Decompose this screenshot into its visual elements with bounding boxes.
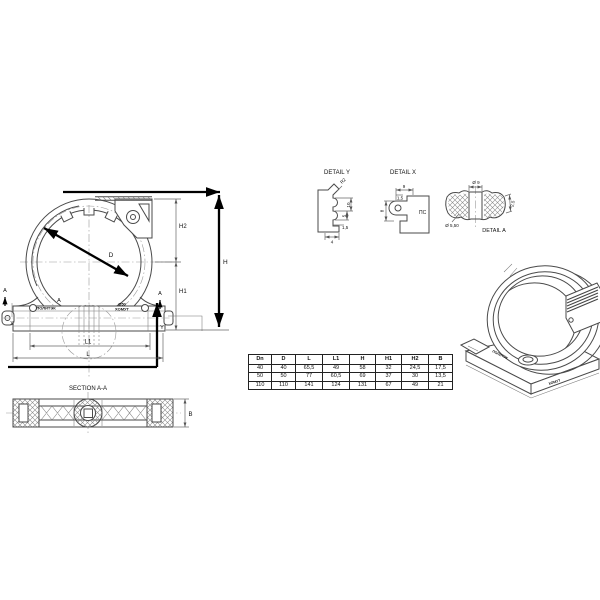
detail-y-title: DETAIL Y: [324, 170, 350, 176]
cell: 13,5: [429, 373, 453, 382]
col-l1: L1: [323, 355, 350, 365]
dim-h2-label: H2: [179, 224, 187, 230]
cell: 110: [249, 381, 272, 390]
dim-d-label: D: [109, 252, 114, 259]
detail-a-view: Ø 9 Ø 5,50 2,5 DETAIL A: [445, 180, 515, 234]
col-h1: H1: [376, 355, 402, 365]
cell: 37: [376, 373, 402, 382]
detail-x-dim-8: 8: [380, 209, 385, 212]
section-aa-title: SECTION A-A: [69, 386, 107, 392]
cell: 50: [249, 373, 272, 382]
isometric-view: ПОЛИТЭК ХОМУТ: [461, 254, 600, 398]
col-d: D: [272, 355, 296, 365]
section-aa-view: SECTION A-A B: [6, 386, 193, 433]
table-row: 110 110 141 124 131 67 49 21: [249, 381, 453, 390]
col-l: L: [296, 355, 323, 365]
detail-x-view: DETAIL X 9 1,5 8 ПС: [380, 170, 430, 233]
cell: 50: [272, 373, 296, 382]
dim-h1-label: H1: [179, 289, 187, 295]
detail-y-view: DETAIL Y R2 10 5 1,5 4: [318, 170, 353, 245]
cell: 69: [350, 373, 376, 382]
col-h: H: [350, 355, 376, 365]
cell: 49: [323, 364, 350, 373]
cell: 49: [402, 381, 429, 390]
detail-a-dim-top: Ø 9: [472, 180, 480, 185]
cell: 65,5: [296, 364, 323, 373]
detail-x-dim-15: 1,5: [397, 196, 404, 201]
dim-d-arrow: [44, 228, 128, 276]
detail-y-dim-15: 1,5: [342, 225, 349, 230]
table-row: 50 50 77 60,5 69 37 30 13,5: [249, 373, 453, 382]
section-marker-a-mid: A: [57, 298, 61, 304]
detail-a-title: DETAIL A: [482, 228, 506, 234]
cell: 67: [376, 381, 402, 390]
detail-y-dim-10: 10: [346, 202, 351, 208]
detail-y-dim-4: 4: [331, 240, 334, 245]
table-header-row: Dn D L L1 H H1 H2 B: [249, 355, 453, 365]
clamp-body-outline: ПОЛИТЭК Ø50 ХОМУТ: [2, 197, 176, 378]
section-boss-hole: [84, 409, 93, 418]
dim-h-label: H: [223, 259, 228, 266]
detail-marker-x: X: [10, 321, 14, 327]
drawing-canvas: ПОЛИТЭК Ø50 ХОМУТ A A A X Y D H: [0, 0, 600, 600]
latch-screw-hole: [127, 211, 140, 224]
cell: 124: [323, 381, 350, 390]
col-h2: H2: [402, 355, 429, 365]
dimension-table-wrap: Dn D L L1 H H1 H2 B 40 40 65,5 49 58 3: [248, 354, 453, 390]
detail-x-dim-9: 9: [403, 184, 406, 189]
cell: 131: [350, 381, 376, 390]
latch-assembly: [115, 199, 152, 238]
detail-a-dim-hole: Ø 5,50: [445, 223, 459, 228]
cell: 17,5: [429, 364, 453, 373]
product-label: ХОМУТ: [115, 307, 129, 312]
section-marker-a-left: A: [3, 288, 7, 294]
detail-marker-y: Y: [160, 325, 164, 331]
detail-a-hatch-left: [448, 194, 468, 218]
col-b: B: [429, 355, 453, 365]
detail-a-hatch-right: [484, 194, 504, 218]
cell: 40: [249, 364, 272, 373]
section-marker-a-right: A: [158, 291, 162, 297]
dim-l-label: L: [86, 352, 90, 358]
cell: 30: [402, 373, 429, 382]
detail-y-dim-5: 5: [342, 214, 347, 217]
cell: 40: [272, 364, 296, 373]
detail-x-note: ПС: [419, 210, 427, 216]
drawing-sheet: ПОЛИТЭК Ø50 ХОМУТ A A A X Y D H: [0, 0, 600, 600]
cell: 58: [350, 364, 376, 373]
col-dn: Dn: [249, 355, 272, 365]
cell: 24,5: [402, 364, 429, 373]
main-dimensions: D H H2 H1 L1 L: [8, 192, 229, 367]
cell: 77: [296, 373, 323, 382]
cell: 32: [376, 364, 402, 373]
table-row: 40 40 65,5 49 58 32 24,5 17,5: [249, 364, 453, 373]
dim-b-label: B: [189, 412, 193, 418]
detail-x-title: DETAIL X: [390, 170, 416, 176]
brand-label: ПОЛИТЭК: [36, 306, 56, 311]
main-view: ПОЛИТЭК Ø50 ХОМУТ A A A X Y D H: [2, 192, 229, 378]
cell: 21: [429, 381, 453, 390]
cell: 141: [296, 381, 323, 390]
dimension-table: Dn D L L1 H H1 H2 B 40 40 65,5 49 58 3: [248, 354, 453, 390]
dim-l1-label: L1: [85, 340, 92, 346]
detail-y-r2: R2: [339, 177, 347, 185]
cell: 60,5: [323, 373, 350, 382]
cell: 110: [272, 381, 296, 390]
detail-a-dim-side: 2,5: [509, 200, 515, 208]
